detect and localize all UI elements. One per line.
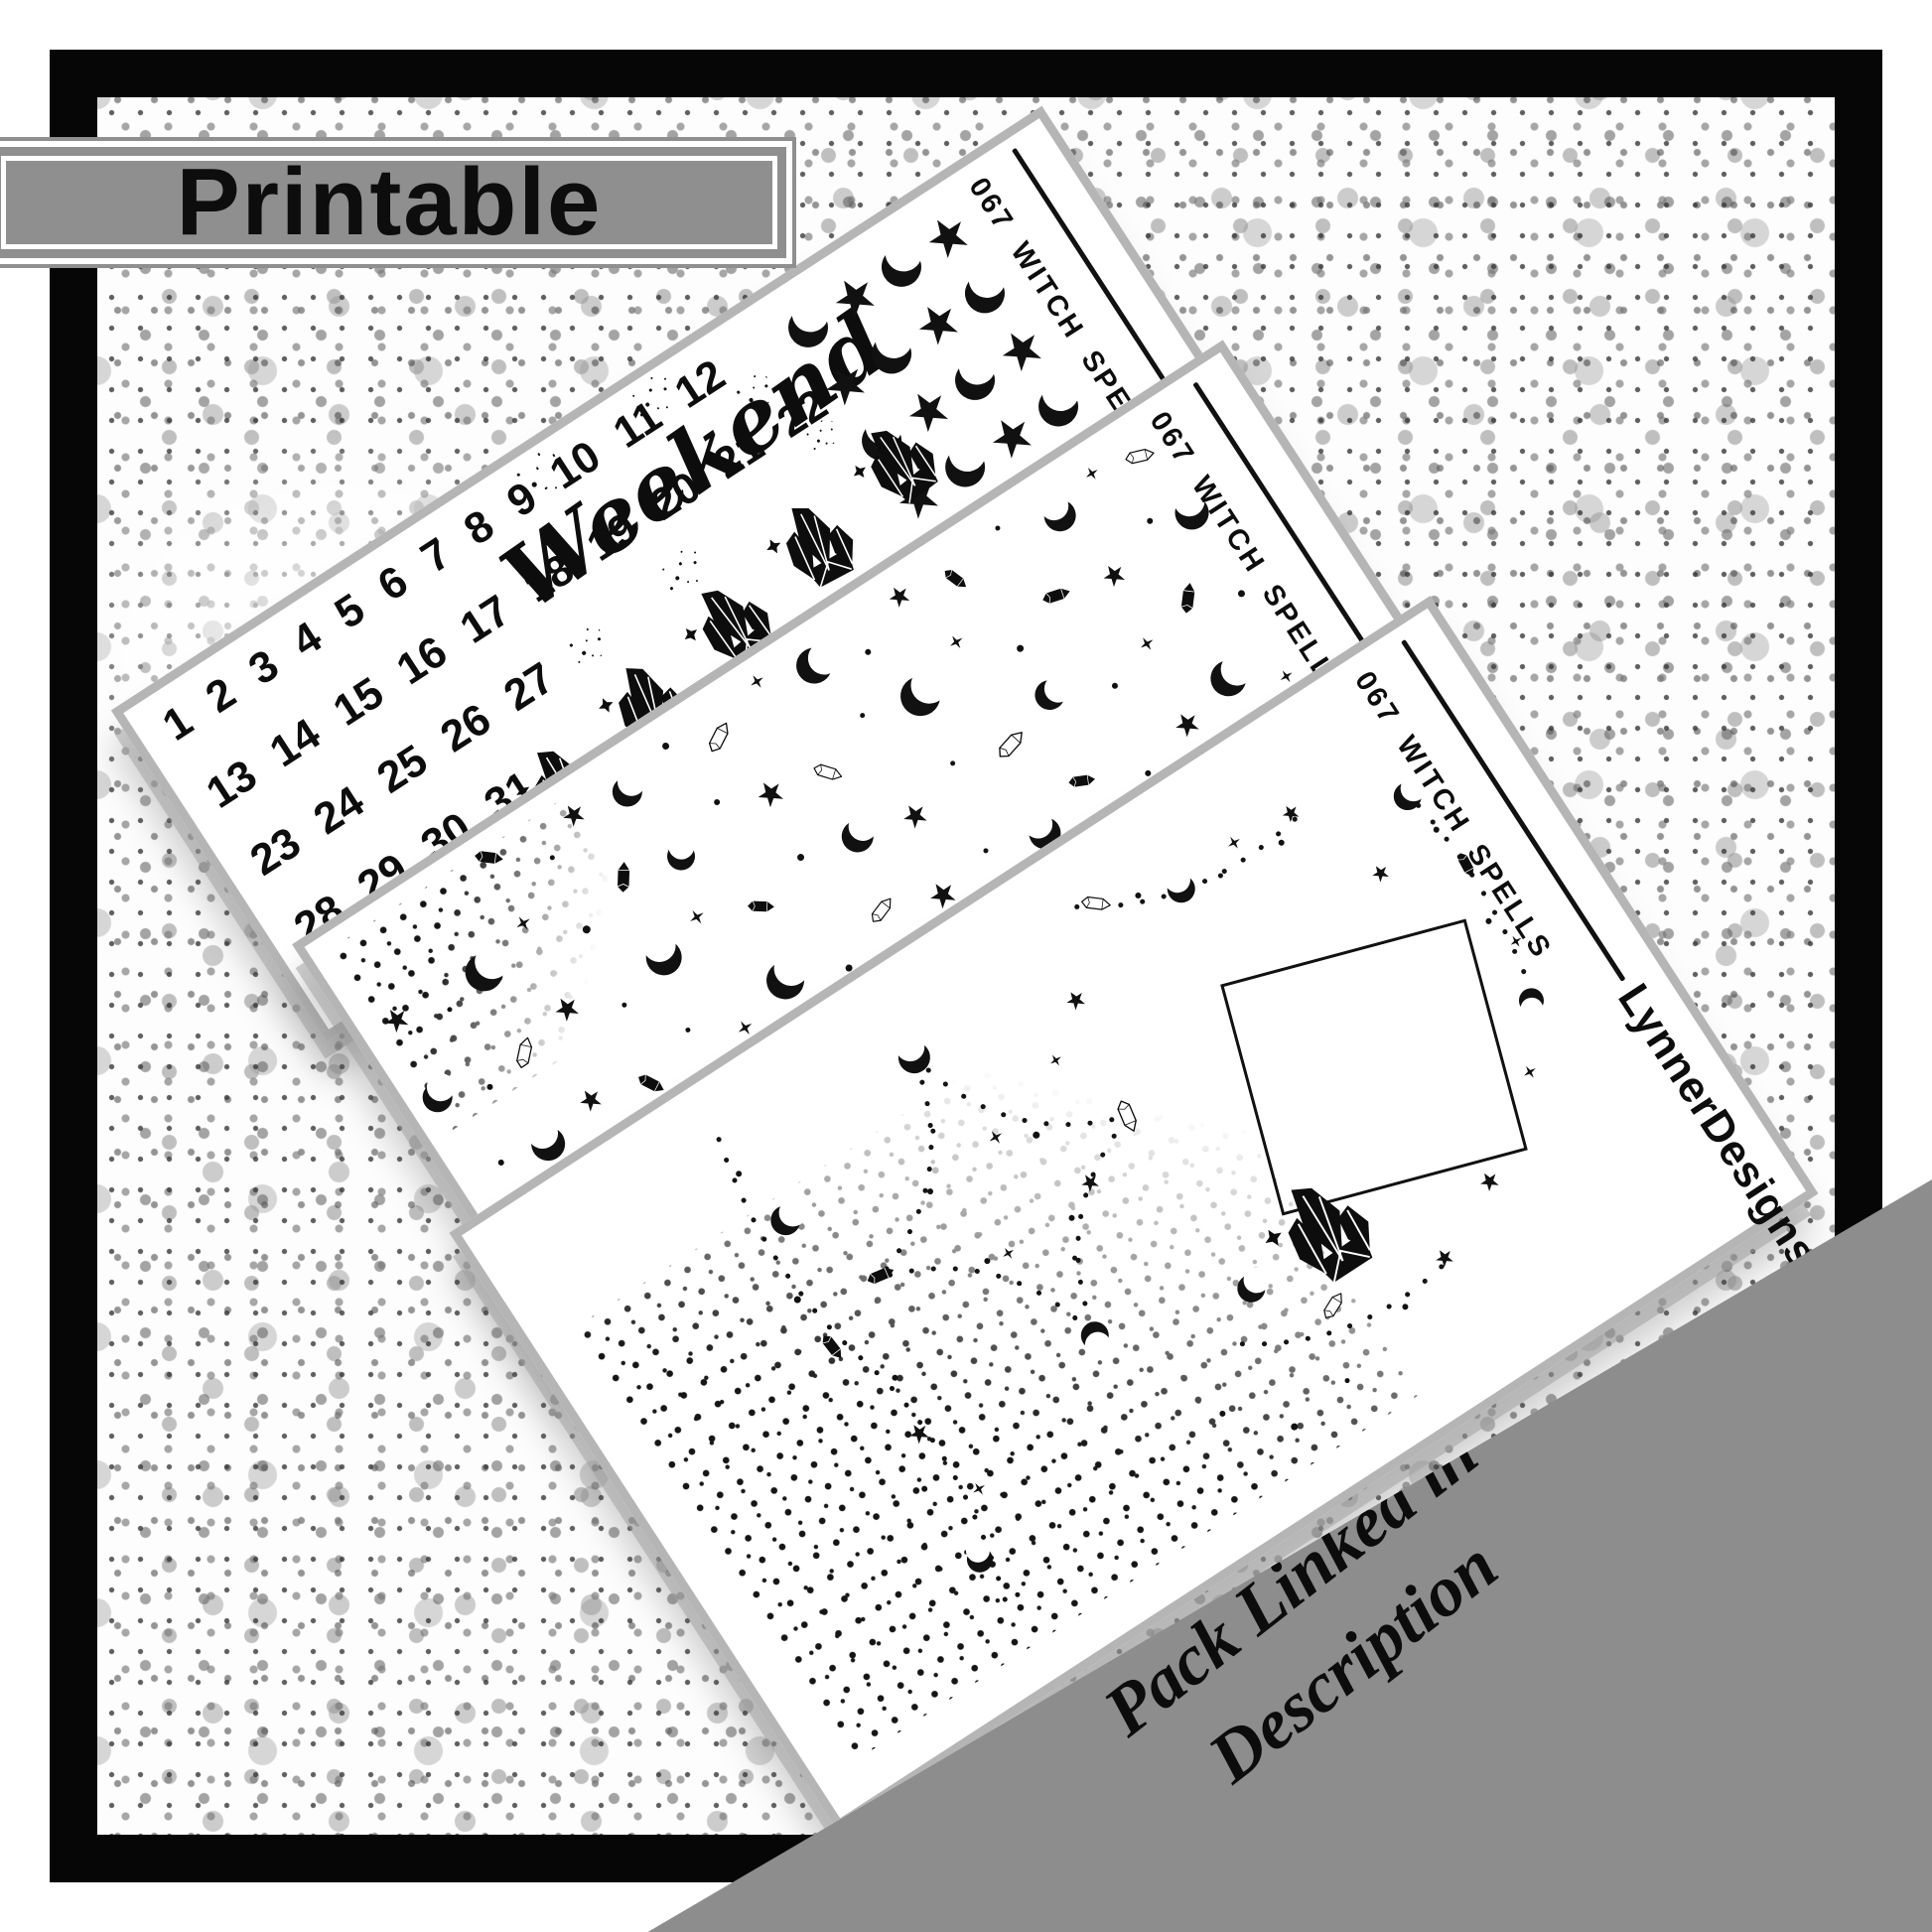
dot (640, 413, 643, 416)
sparkle-icon (1277, 667, 1296, 686)
moon-icon (418, 1078, 457, 1117)
dot (1343, 1377, 1350, 1384)
crystal-gem-outline-icon (868, 895, 897, 926)
sparkle-icon (946, 631, 967, 652)
star-icon (1369, 862, 1393, 886)
dot (713, 798, 721, 806)
dot (446, 1006, 453, 1013)
moon-icon (1164, 871, 1199, 906)
moon-icon (1235, 1272, 1269, 1306)
dot (535, 467, 539, 471)
dot (1401, 1303, 1409, 1311)
dot (754, 375, 756, 377)
star-icon (559, 799, 589, 829)
star-icon (576, 1084, 606, 1114)
crystal-gem-outline-icon (514, 1035, 534, 1069)
crystal-gem-icon (818, 1331, 847, 1363)
dot (592, 654, 595, 657)
crystal-gem-outline-icon (705, 720, 733, 756)
star-icon (550, 992, 583, 1025)
crystal-gem-icon (865, 1264, 897, 1288)
sparkle-icon (1520, 1062, 1539, 1081)
dot (859, 712, 866, 719)
dot (679, 562, 682, 565)
dot (819, 429, 821, 431)
dot (598, 629, 600, 631)
dot (1484, 917, 1492, 925)
dot (1278, 839, 1286, 847)
dot (1014, 1591, 1021, 1598)
moon-icon (1040, 495, 1080, 535)
dot (516, 473, 520, 477)
dot (555, 486, 558, 489)
moon-icon (1033, 677, 1068, 713)
moon-icon (1210, 660, 1247, 697)
dot (1216, 872, 1223, 879)
dot (526, 494, 530, 498)
moon-icon (770, 1205, 801, 1236)
dot (581, 924, 592, 935)
dot (831, 420, 833, 422)
dot (948, 759, 955, 766)
moon-icon (793, 644, 836, 687)
dot (1015, 643, 1025, 653)
dot (694, 551, 697, 554)
dot (832, 442, 834, 444)
crystal-gem-outline-icon (994, 727, 1028, 761)
moon-icon (761, 957, 809, 1005)
moon-icon (661, 837, 701, 877)
dot (1134, 892, 1142, 899)
crystal-gem-icon (940, 566, 970, 593)
dot (600, 654, 602, 656)
moon-icon (899, 675, 941, 717)
sparkle-icon (1046, 1051, 1064, 1069)
moon-icon (962, 1542, 998, 1578)
dot (795, 853, 805, 863)
moon-icon (639, 933, 687, 981)
dot (920, 1484, 928, 1492)
crystal-gem-icon (616, 861, 630, 893)
crystal-gem-icon (747, 899, 774, 912)
crystal-cluster-icon (834, 401, 959, 526)
dot (666, 406, 669, 409)
dot (1218, 1410, 1226, 1418)
dot (570, 644, 573, 647)
star-icon (1432, 1245, 1456, 1270)
dot (686, 580, 689, 583)
dot (816, 439, 820, 443)
dot (675, 576, 681, 582)
dot (696, 580, 699, 583)
star-icon (885, 582, 913, 611)
star-icon (753, 775, 788, 811)
moon-icon (463, 951, 505, 994)
dot (813, 448, 815, 450)
dot (660, 741, 670, 751)
dot (929, 1128, 936, 1135)
dot (531, 482, 537, 487)
moon-icon (1076, 1316, 1114, 1354)
sparkle-icon (1000, 1244, 1018, 1262)
dot (749, 397, 754, 402)
dot (581, 650, 586, 655)
dot (1031, 1130, 1040, 1140)
moon-icon (1513, 983, 1548, 1018)
star-icon (1171, 708, 1203, 741)
crystal-gem-icon (1040, 585, 1073, 607)
dot (650, 376, 653, 379)
dot (994, 524, 1001, 531)
dot (631, 394, 634, 397)
dot (670, 587, 673, 590)
dot (806, 433, 808, 435)
sparkle-icon (747, 671, 767, 692)
printable-label: Printable (177, 148, 603, 257)
star-icon (898, 799, 931, 832)
crystal-gem-icon (474, 850, 504, 867)
crystal-gem-icon (1067, 772, 1096, 788)
dot (1236, 589, 1246, 599)
dot (680, 550, 683, 553)
dot (598, 637, 602, 641)
dot (1067, 1214, 1075, 1222)
dot (752, 386, 755, 389)
crystal-gem-outline-icon (1080, 896, 1111, 912)
dot (766, 401, 768, 403)
sparkle-icon (512, 912, 534, 934)
dot (830, 428, 833, 431)
dot (621, 1002, 627, 1009)
printable-banner: Printable (0, 141, 792, 264)
dot (825, 442, 827, 444)
dot (765, 376, 767, 378)
dot (759, 401, 761, 404)
star-icon (1078, 1171, 1103, 1195)
moon-icon (839, 817, 877, 855)
dot (497, 1159, 505, 1167)
dot (1289, 1422, 1299, 1432)
dot (649, 388, 652, 391)
dot (1070, 1255, 1077, 1262)
sparkle-icon (985, 1127, 1006, 1148)
dot (684, 1027, 691, 1034)
dot (764, 384, 768, 388)
sparkle-icon (969, 1479, 988, 1498)
dot (983, 1257, 991, 1265)
moon-icon (893, 1036, 935, 1079)
star-icon (1279, 801, 1303, 825)
dot (891, 1374, 898, 1382)
star-icon (905, 1420, 933, 1448)
dot (644, 402, 650, 408)
dot (821, 420, 823, 422)
dot (544, 486, 548, 490)
sparkle-icon (1137, 633, 1158, 654)
dot (663, 386, 667, 390)
crystal-gem-outline-icon (1124, 447, 1156, 467)
dot (864, 648, 872, 656)
crystal-gem-outline-icon (812, 762, 845, 783)
dot (735, 1170, 743, 1177)
sparkle-icon (1082, 464, 1101, 483)
dot (661, 568, 664, 571)
dot (553, 454, 556, 457)
dot (1111, 682, 1119, 690)
product-listing-image: 1 2 3 4 5 6 7 8 9 10 11 1213 14 15 16 17… (0, 0, 1932, 1932)
crystal-gem-outline-icon (1114, 1097, 1141, 1134)
dot (548, 854, 555, 861)
dot (585, 639, 588, 642)
dot (745, 407, 748, 410)
dot (1433, 826, 1441, 834)
dot (693, 560, 697, 564)
dot (551, 465, 556, 470)
moon-icon (609, 773, 646, 811)
dot (792, 1295, 802, 1305)
dot (1146, 517, 1154, 525)
dot (485, 1083, 493, 1091)
dot (737, 391, 740, 394)
star-icon (380, 1004, 413, 1036)
dot (664, 377, 667, 380)
dot (577, 660, 580, 663)
star-icon (1476, 1169, 1502, 1194)
dot (982, 847, 989, 854)
star-icon (1062, 987, 1088, 1013)
dot (537, 453, 540, 456)
crystal-gem-icon (1179, 582, 1197, 615)
star-icon (1099, 560, 1129, 590)
sparkle-icon (1224, 833, 1243, 852)
dot (656, 406, 659, 409)
dot (586, 628, 588, 630)
dot (926, 1187, 934, 1195)
sparkle-icon (686, 906, 708, 928)
